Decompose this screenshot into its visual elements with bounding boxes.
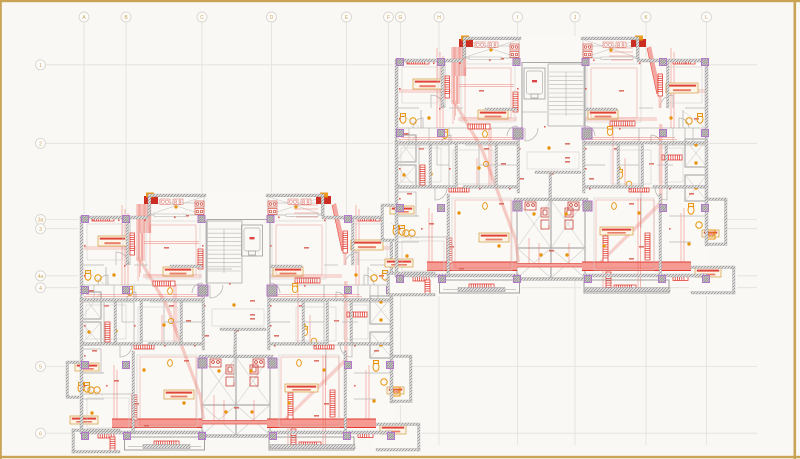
svg-text:L: L [705,15,708,21]
svg-text:H: H [437,15,441,21]
svg-text:I: I [517,15,518,21]
svg-text:6: 6 [39,431,42,437]
svg-text:C: C [200,15,204,21]
svg-text:5: 5 [39,365,42,371]
svg-text:4: 4 [39,286,42,292]
svg-text:2: 2 [39,142,42,148]
svg-text:3a: 3a [38,218,44,224]
svg-text:G: G [399,15,403,21]
svg-text:3: 3 [39,227,42,233]
svg-text:1: 1 [39,63,42,69]
svg-text:4a: 4a [38,274,44,280]
svg-text:F: F [387,15,390,21]
svg-text:D: D [270,15,274,21]
